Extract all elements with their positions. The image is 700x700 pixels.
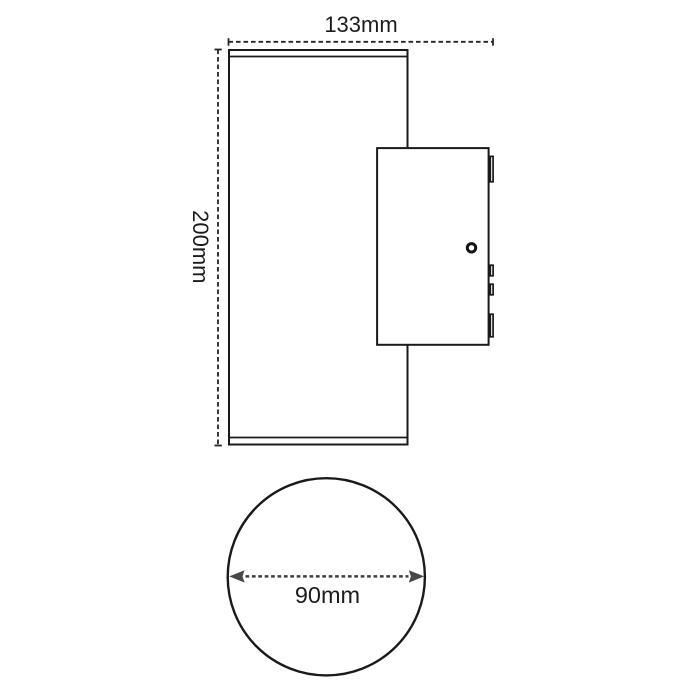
svg-text:90mm: 90mm (295, 582, 360, 608)
svg-text:133mm: 133mm (324, 12, 397, 37)
svg-text:200mm: 200mm (188, 210, 213, 283)
